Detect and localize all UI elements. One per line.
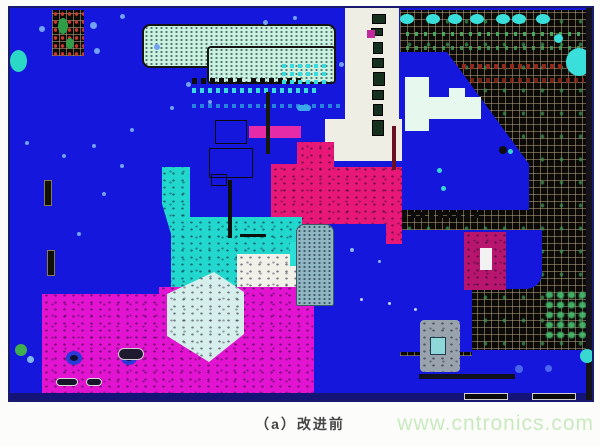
- pad-dot: [15, 344, 27, 356]
- pad-pill-dark: [86, 378, 102, 386]
- pad-dot: [92, 144, 96, 148]
- cyan-pad: [536, 14, 550, 24]
- pad-dot: [208, 100, 212, 104]
- silk-patch: [429, 97, 481, 119]
- pad-dot: [263, 20, 268, 25]
- pad-dot: [339, 62, 344, 67]
- pad-dot: [130, 128, 134, 132]
- pad-dot: [170, 106, 174, 110]
- pad-row-black: [192, 78, 246, 84]
- bga-green-blob: [58, 18, 68, 34]
- cyan-pad: [448, 14, 462, 24]
- pad-dot: [293, 16, 297, 20]
- pad-dot: [378, 260, 381, 263]
- cyan-pad-left: [10, 50, 27, 72]
- pad-dot: [515, 365, 523, 373]
- pad-pill-dark: [56, 378, 78, 386]
- strip-component: [372, 90, 384, 100]
- pad-dot: [499, 146, 507, 154]
- footprint-trace: [228, 180, 232, 238]
- silk-patch: [405, 77, 429, 131]
- pad-dot: [120, 164, 124, 168]
- cyan-pad: [470, 14, 484, 24]
- resistor-footprint: [44, 180, 52, 206]
- pad-dot: [94, 48, 100, 54]
- grid-green-component: [544, 290, 588, 340]
- connector-gray: [296, 224, 334, 306]
- pad-dot: [27, 356, 34, 363]
- watermark-text: www.cntronics.com: [397, 412, 594, 436]
- pad-pill-dark: [118, 348, 144, 360]
- pad-dot: [437, 168, 442, 173]
- pad-dot: [441, 186, 446, 191]
- strip-component: [372, 58, 384, 68]
- board-right-edge: [586, 8, 592, 400]
- pad-dot: [508, 149, 513, 154]
- footprint-trace: [240, 234, 266, 237]
- pad-dot: [545, 365, 552, 372]
- pad-dot: [90, 22, 97, 29]
- pcb-layout-image: [8, 6, 594, 402]
- pad-row-black: [402, 212, 482, 218]
- pad-row-cyan: [282, 80, 330, 84]
- edge-pad: [464, 393, 508, 400]
- pad-dot: [62, 154, 66, 158]
- cyan-pad-small: [554, 34, 563, 43]
- cyan-pad: [496, 14, 510, 24]
- strip-component: [373, 72, 385, 86]
- trace-magenta-bar: [249, 126, 301, 138]
- pad-dot: [120, 14, 125, 19]
- strip-component: [372, 120, 384, 136]
- bga-component: [52, 10, 84, 56]
- component-crimson-center: [480, 248, 492, 270]
- silk-strip-foot: [325, 119, 402, 161]
- silk-patch: [449, 88, 465, 98]
- pad-dot: [25, 141, 29, 145]
- footprint-outline: [215, 120, 247, 144]
- pad-row-cyan: [282, 72, 330, 76]
- via: [66, 351, 82, 365]
- cyan-pad: [512, 14, 526, 24]
- pad-dot: [154, 44, 160, 50]
- pad-dot: [39, 26, 45, 32]
- pad-dot: [360, 298, 363, 301]
- strip-component: [372, 14, 386, 24]
- cyan-pad: [426, 14, 440, 24]
- pad-dot: [388, 302, 391, 305]
- pad-dot: [580, 349, 594, 363]
- trace-maroon: [392, 126, 396, 170]
- resistor-footprint: [47, 250, 55, 276]
- footprint-outline: [211, 174, 227, 186]
- footprint-trace: [266, 92, 270, 154]
- strip-component: [373, 42, 383, 54]
- pad-dot: [414, 308, 417, 311]
- strip-component: [373, 104, 383, 116]
- pad-row-cyan: [192, 88, 316, 93]
- pad-dot: [186, 82, 191, 87]
- pad-dot: [350, 248, 354, 252]
- trace-dark: [419, 374, 515, 379]
- component-gray-center: [430, 337, 446, 355]
- bga-green-blob: [66, 38, 74, 49]
- pad-dot: [77, 232, 81, 236]
- edge-pad: [532, 393, 576, 400]
- pad-pill: [297, 105, 311, 111]
- grid-pad-row-green: [406, 46, 584, 50]
- figure-page: （a）改进前 www.cntronics.com: [0, 0, 600, 446]
- pad-dot: [102, 192, 106, 196]
- strip-component-magenta: [367, 30, 375, 38]
- cyan-pad: [400, 14, 414, 24]
- pad-row-cyan: [282, 64, 330, 68]
